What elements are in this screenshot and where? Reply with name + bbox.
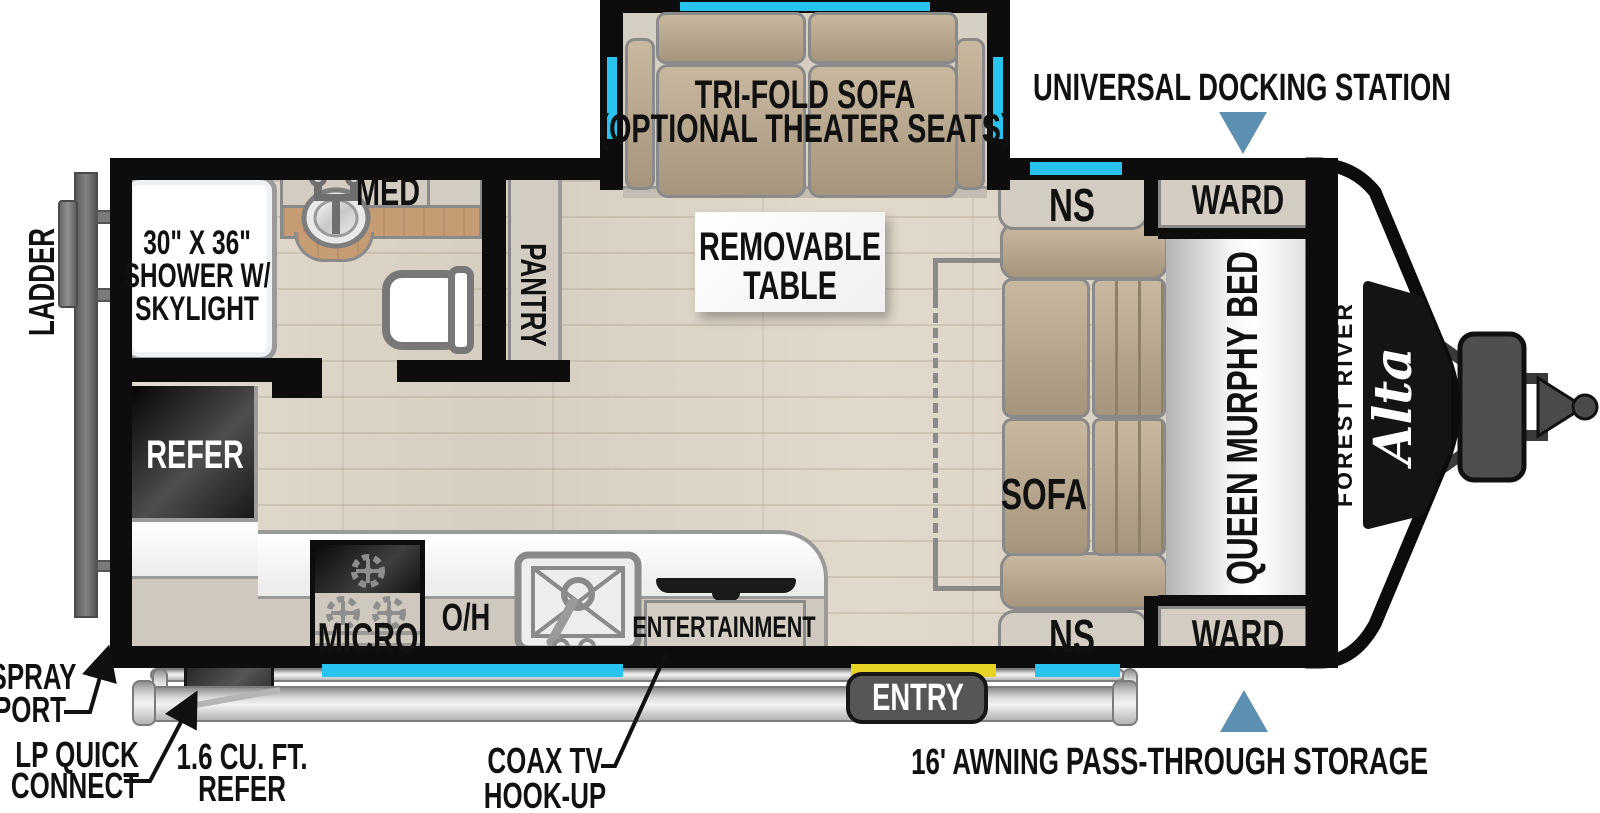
refer16-label-line2: REFER [198, 771, 286, 807]
lp-label-line2: CONNECT [11, 768, 139, 804]
bed-outline-corner-bottom [933, 548, 1000, 591]
sofa-back-cushion [1092, 418, 1166, 556]
kitchen-sink [513, 550, 643, 654]
removable-table-label-line2: TABLE [743, 266, 837, 306]
murphy-bed-label: QUEEN MURPHY BED [1221, 251, 1265, 585]
cabinet-face [132, 576, 258, 652]
awning-label: 16' AWNING [911, 744, 1059, 780]
entertainment-label: ENTERTAINMENT [632, 613, 815, 643]
wardrobe-bottom-label: WARD [1192, 614, 1284, 656]
bathroom-wall-right [482, 158, 506, 366]
sofa [1000, 222, 1168, 610]
docking-arrow-icon [1219, 112, 1267, 154]
wall-under-ward-top [1158, 228, 1322, 239]
burner-icon [348, 551, 388, 591]
sofa-armrest [1000, 552, 1168, 610]
awning-endcap [132, 680, 156, 726]
medicine-cabinet-label: MED [356, 172, 420, 212]
passthrough-label: PASS-THROUGH STORAGE [1066, 743, 1428, 781]
coax-label-line2: HOOK-UP [484, 778, 606, 813]
sofa-back-cushion [1092, 278, 1166, 418]
shower-label-line1: 30" X 36" [143, 226, 251, 260]
wall-over-ward-bottom [1158, 595, 1322, 606]
micro-label: MICRO [318, 617, 419, 659]
passthrough-arrow-icon [1220, 690, 1268, 732]
wall-right [1318, 158, 1338, 668]
floorplan-diagram: LADDER TRI-FOLD SOFA (OPTIONAL THEATER S… [0, 0, 1600, 813]
sofa-seat-cushion [1002, 278, 1090, 418]
bathroom-wall-step [272, 376, 322, 398]
nightstand-bottom-label: NS [1049, 613, 1095, 659]
window-strip [1030, 162, 1122, 175]
docking-label: UNIVERSAL DOCKING STATION [1033, 69, 1451, 107]
ladder-label: LADDER [24, 228, 60, 336]
trifold-sofa-back-cushion [656, 12, 806, 64]
wardrobe-top-label: WARD [1192, 179, 1284, 221]
trifold-sofa-label-line2: (OPTIONAL THEATER SEATS) [599, 109, 1010, 149]
trifold-sofa-back-cushion [808, 12, 958, 64]
awning-endcap [1112, 680, 1138, 726]
pantry-label: PANTRY [515, 243, 551, 347]
window-strip [322, 664, 623, 677]
coax-label-line1: COAX TV [487, 743, 602, 779]
window-strip [1035, 664, 1120, 677]
bed-outline-dashed [933, 298, 943, 548]
counter-left [132, 518, 258, 648]
shower-label-line3: SKYLIGHT [135, 292, 259, 326]
wall-bottom [110, 646, 1335, 668]
shower-label-line2: SHOWER W/ [124, 259, 271, 293]
tv [656, 578, 796, 593]
hitch-ball [1573, 395, 1597, 419]
propane-tank [1460, 334, 1524, 480]
removable-table-label-line1: REMOVABLE [699, 227, 881, 267]
sofa-label: SOFA [1001, 473, 1087, 517]
nightstand-top-label: NS [1049, 182, 1095, 228]
refrigerator-label: REFER [146, 435, 244, 475]
wall-left [110, 158, 132, 668]
slideout-window [680, 2, 930, 11]
bathroom-wall-bottom-right [397, 360, 570, 382]
spray-label-line2: PORT [0, 692, 66, 728]
bed-outline-corner-top [933, 258, 1000, 303]
brand-model: Alta [1363, 347, 1424, 470]
entry-label: ENTRY [872, 679, 964, 717]
overhead-label: O/H [442, 599, 491, 637]
toilet-tank [448, 266, 474, 354]
